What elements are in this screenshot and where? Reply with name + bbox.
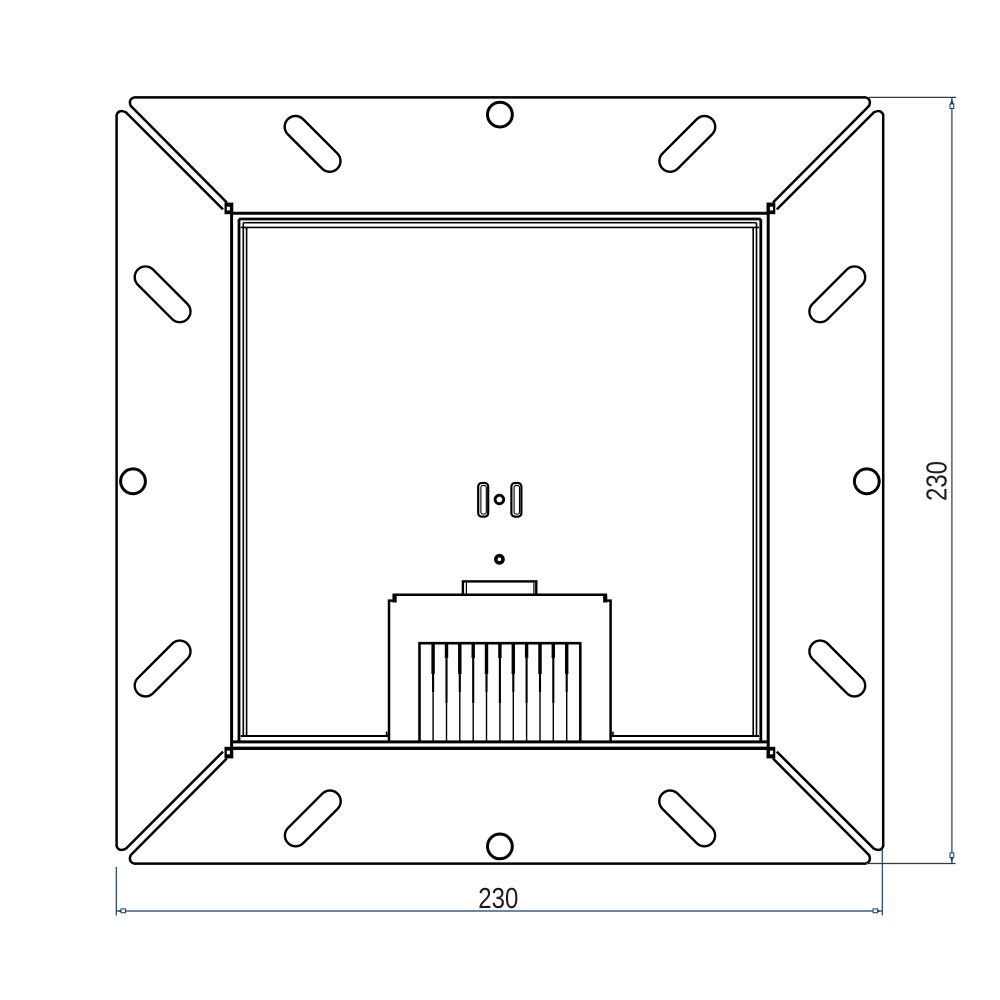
svg-text:230: 230 xyxy=(478,883,518,915)
svg-text:230: 230 xyxy=(922,461,954,501)
